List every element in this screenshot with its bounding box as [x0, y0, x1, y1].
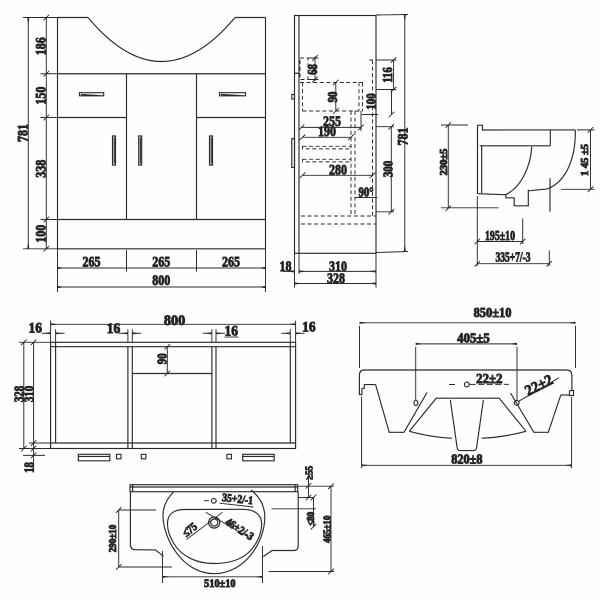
svg-text:≤80: ≤80 [307, 512, 318, 526]
svg-text:150: 150 [32, 86, 49, 104]
svg-text:800: 800 [164, 313, 185, 329]
svg-text:100: 100 [363, 93, 378, 109]
svg-text:16: 16 [29, 320, 42, 337]
svg-text:190: 190 [318, 123, 336, 140]
svg-text:265: 265 [222, 253, 240, 270]
svg-text:310: 310 [21, 386, 36, 402]
svg-text:18: 18 [280, 258, 292, 275]
svg-text:195±10: 195±10 [485, 227, 515, 243]
svg-text:800: 800 [152, 272, 170, 289]
svg-text:265: 265 [152, 253, 170, 270]
svg-text:290±10: 290±10 [109, 525, 120, 553]
svg-text:18: 18 [21, 462, 36, 473]
svg-text:100: 100 [32, 225, 49, 243]
svg-text:230±5: 230±5 [439, 149, 450, 176]
svg-text:265: 265 [82, 253, 100, 270]
svg-text:328: 328 [327, 270, 345, 287]
svg-text:90°: 90° [358, 184, 373, 199]
svg-text:405±5: 405±5 [457, 330, 490, 345]
svg-text:16: 16 [225, 323, 238, 340]
svg-text:≤75: ≤75 [180, 520, 200, 540]
svg-text:16: 16 [302, 319, 315, 336]
svg-text:850±10: 850±10 [474, 304, 512, 320]
svg-text:16: 16 [107, 320, 120, 337]
svg-text:510±10: 510±10 [204, 577, 236, 590]
svg-text:300: 300 [380, 161, 395, 177]
svg-text:280: 280 [329, 161, 347, 178]
svg-text:1 45 ±5: 1 45 ±5 [580, 144, 591, 176]
svg-text:781: 781 [394, 127, 411, 145]
svg-text:781: 781 [14, 124, 31, 142]
svg-text:335+7/-3: 335+7/-3 [496, 250, 531, 265]
svg-text:68: 68 [305, 64, 320, 75]
svg-text:116: 116 [380, 67, 395, 83]
svg-text:186: 186 [32, 37, 49, 55]
svg-text:465±10: 465±10 [323, 515, 334, 543]
svg-text:46+2/-3: 46+2/-3 [223, 516, 256, 544]
svg-text:35+2/-1: 35+2/-1 [221, 491, 253, 507]
svg-text:90: 90 [154, 353, 169, 364]
svg-text:22±2: 22±2 [522, 372, 555, 400]
svg-text:22±2: 22±2 [476, 370, 503, 385]
svg-text:820±8: 820±8 [451, 452, 483, 467]
svg-text:90: 90 [325, 92, 340, 103]
svg-text:338: 338 [32, 160, 49, 178]
svg-text:≥55: ≥55 [305, 466, 316, 480]
